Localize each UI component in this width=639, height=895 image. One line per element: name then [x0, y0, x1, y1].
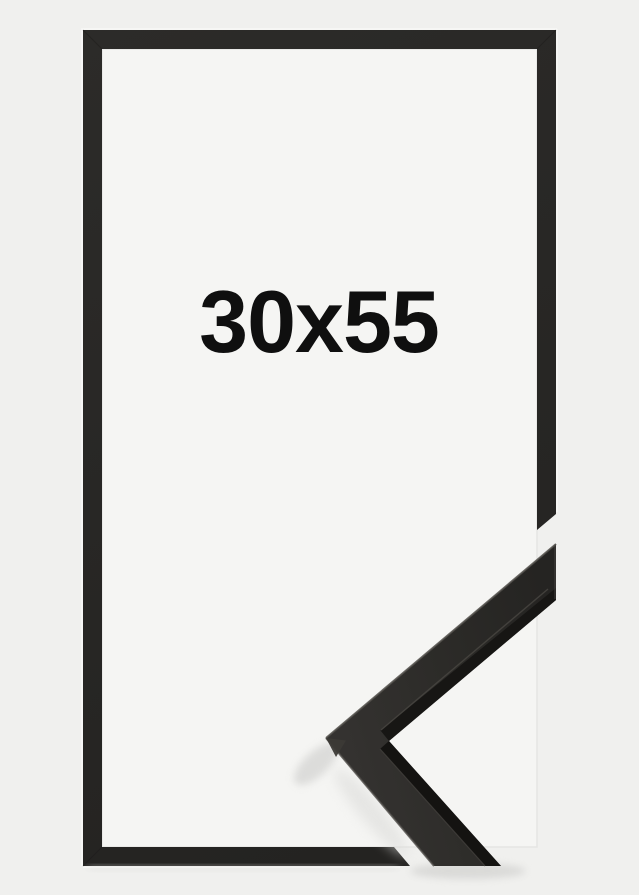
frame-border-right [537, 30, 556, 530]
frame-illustration: 30x55 [0, 0, 639, 895]
product-photo: 30x55 [0, 0, 639, 895]
frame-border-left [83, 30, 102, 866]
frame-opening [102, 49, 537, 847]
frame-border-bottom [83, 847, 410, 866]
frame-bottom-shadow [88, 866, 398, 870]
frame-border-top [83, 30, 556, 49]
frame-size-label: 30x55 [199, 272, 439, 371]
